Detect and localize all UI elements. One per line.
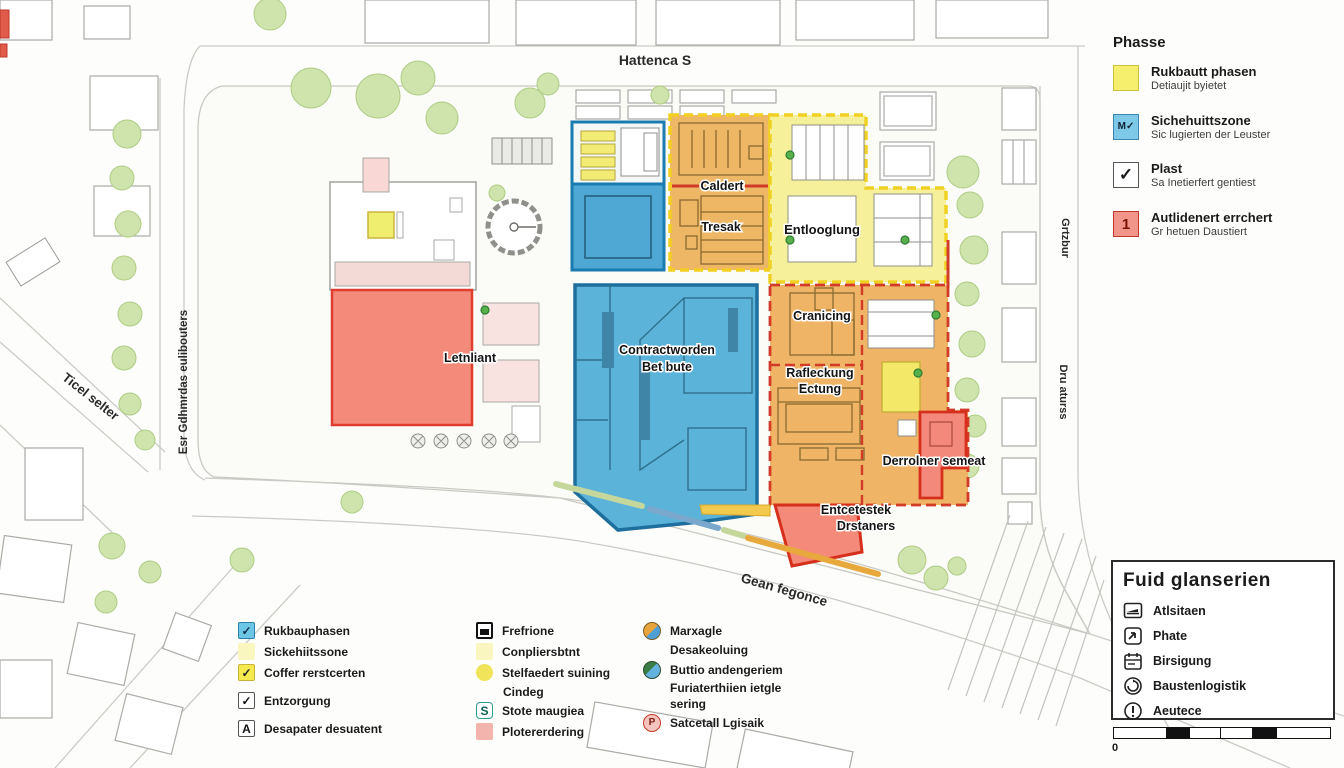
yellow-swatch-icon [1113,65,1139,91]
info-item-label: Atlsitaen [1153,604,1206,618]
yellow-check-swatch-icon: ✓ [238,664,255,681]
phase-item-label: Sichehuittszone [1151,114,1270,129]
legend-label: Furiaterthiien ietgle [643,681,781,695]
zone-label-derrolner: Derrolner semeat [883,454,987,468]
zone-label-cranicing: Cranicing [793,309,851,323]
legend-label: Buttio andengeriem [670,663,783,677]
legend-label: Stote maugiea [502,704,584,718]
pink-swatch-icon [476,723,493,740]
info-box: Fuid glanserien Atlsitaen Phate Birsigun… [1111,560,1335,720]
scale-bar [1113,727,1331,739]
zone-label-tresak: Tresak [701,220,741,234]
info-box-item: Atlsitaen [1123,598,1323,623]
info-box-title: Fuid glanserien [1123,570,1323,592]
white-check-swatch-icon: ✓ [238,692,255,709]
legend-label: Frefrione [502,624,554,638]
phase-legend: Phasse Rukbautt phasen Detiaujit byietet… [1113,34,1341,260]
zone-label-entlooglung: Entlooglung [784,222,860,237]
logistics-clock-icon [1123,676,1143,696]
yellow-swatch-icon [476,664,493,681]
info-item-label: Aeutece [1153,704,1202,718]
map-legend-col3: Marxagle Desakeoluing Buttio andengeriem… [643,620,783,733]
zone-label-contract-1: Contractworden [619,343,715,357]
vehicle-icon [1123,601,1143,621]
street-label-right-bottom: Dru aturss [1057,364,1069,419]
zone-label-rafleckung-2: Ectung [799,382,841,396]
legend-label: Cindeg [476,685,544,699]
calendar-icon [1123,651,1143,671]
phase-legend-title: Phasse [1113,34,1341,51]
phase-legend-item: M✓ Sichehuittszone Sic lugierten der Leu… [1113,114,1341,143]
info-item-label: Birsigung [1153,654,1211,668]
legend-label: sering [643,697,706,711]
legend-label: Sickehiitssone [264,645,348,659]
factory-icon [476,622,493,639]
info-box-item: Birsigung [1123,648,1323,673]
street-label-top: Hattenca S [619,52,691,68]
phase-item-sublabel: Sic lugierten der Leuster [1151,129,1270,143]
pale-yellow-swatch-icon [476,643,493,660]
street-label-left: Esr Gdhmrdas eulibouters [178,310,190,454]
legend-label: Plotererdering [502,725,584,739]
phase-item-label: Autlidenert errchert [1151,211,1272,226]
legend-label: Entzorgung [264,694,331,708]
info-box-item: Baustenlogistik [1123,673,1323,698]
letter-s-swatch-icon: S [476,702,493,719]
info-item-label: Baustenlogistik [1153,679,1246,693]
legend-label: Satcetall Lgisaik [670,716,764,730]
recycle-icon [643,622,661,640]
pale-yellow-swatch-icon [238,643,255,660]
phase-item-label: Rukbautt phasen [1151,65,1256,80]
phase-legend-item: ✓ Plast Sa Inetierfert gentiest [1113,162,1341,191]
zone-label-rafleckung-1: Rafleckung [786,366,853,380]
blue-check-swatch-icon: M✓ [1113,114,1139,140]
zone-label-letnliant: Letnliant [444,351,497,365]
arrow-box-icon [1123,626,1143,646]
scale-zero-label: 0 [1112,742,1118,754]
street-label-right-top: Grtzbur [1059,218,1071,258]
zone-label-caldert: Caldert [700,179,744,193]
legend-label: Desakeoluing [643,643,748,657]
site-plan-page: { "map": { "streets": { "top": "Hattenca… [0,0,1344,768]
phase-legend-item: 1 Autlidenert errchert Gr hetuen Daustie… [1113,211,1341,240]
legend-label: Conpliersbtnt [502,645,580,659]
phase-item-sublabel: Sa Inetierfert gentiest [1151,177,1256,191]
letter-a-swatch-icon: A [238,720,255,737]
p-circle-icon: P [643,714,661,732]
map-legend-col2: Frefrione Conpliersbtnt Stelfaedert suin… [476,620,610,742]
info-box-item: Aeutece [1123,698,1323,723]
info-item-label: Phate [1153,629,1187,643]
red-number-swatch-icon: 1 [1113,211,1139,237]
check-swatch-icon: ✓ [1113,162,1139,188]
alert-icon [1123,701,1143,721]
red-edge-buildings [0,10,9,57]
zone-label-contract-2: Bet bute [642,360,692,374]
zone-safety-blue-top [572,122,664,270]
legend-label: Stelfaedert suining [502,666,610,680]
blue-check-swatch-icon: ✓ [238,622,255,639]
recycle-icon [643,661,661,679]
street-label-bottom: Gean fegonce [739,570,829,609]
map-legend-col1: ✓ Rukbauphasen Sickehiitssone ✓ Coffer r… [238,620,382,739]
legend-label: Rukbauphasen [264,624,350,638]
phase-item-sublabel: Detiaujit byietet [1151,80,1256,94]
zone-label-entcetestek-1: Entcetestek [821,503,891,517]
legend-label: Marxagle [670,624,722,638]
phase-legend-item: Rukbautt phasen Detiaujit byietet [1113,65,1341,94]
legend-label: Coffer rerstcerten [264,666,365,680]
info-box-item: Phate [1123,623,1323,648]
phase-item-label: Plast [1151,162,1256,177]
zone-label-entcetestek-2: Drstaners [837,519,895,533]
legend-label: Desapater desuatent [264,722,382,736]
street-label-diagonal-left: Ticel selter [59,370,122,424]
phase-item-sublabel: Gr hetuen Daustiert [1151,226,1272,240]
